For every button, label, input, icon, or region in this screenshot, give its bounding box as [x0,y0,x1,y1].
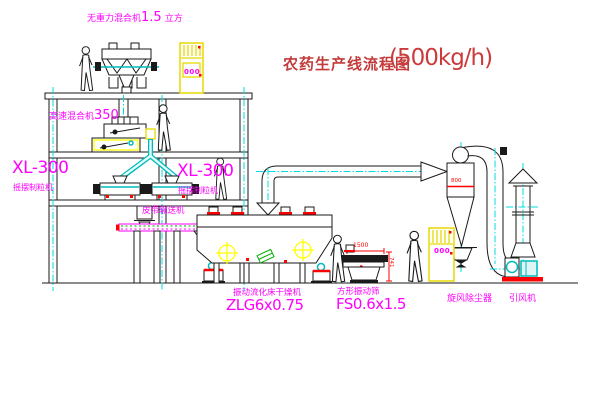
label-granulator-right-model: XL-300 [177,163,233,180]
dimension-screen-length: 1500 [353,243,368,249]
cabinet-upper-display: 000 [184,69,200,76]
label-cyclone: 旋风除尘器 [447,295,492,304]
label-granulator-right-name: 摇摆制粒机 [178,187,218,195]
label-high-speed-mixer: 高速混合机 350 [49,109,119,122]
cad-flowsheet-canvas: 农药生产线流程图 (500kg/h) 无重力混合机 1.5 立方 高速混合机 3… [0,0,600,403]
granulator-left-machine [93,176,147,200]
dimension-screen-height: 741 [388,257,394,268]
label-screen-model: FS0.6x1.5 [336,297,406,312]
drawing-title-capacity: (500kg/h) [389,45,492,71]
person-near-cabinet [407,231,422,281]
person-roof [80,47,93,91]
label-fan: 引风机 [509,295,536,304]
label-granulator-left-name: 摇摆制粒机 [13,184,53,192]
roof-slab [45,93,252,99]
vibrating-screen [339,245,393,283]
dimension-cyclone-body: 800 [451,179,462,185]
label-dryer-model: ZLG6x0.75 [226,298,304,313]
label-granulator-left-model: XL-300 [12,160,68,177]
cabinet-lower-display: 000 [434,248,450,255]
induced-draft-fan [502,258,543,282]
gravity-mixer [93,43,159,93]
fluid-bed-dryer [197,207,332,284]
belt-conveyor [116,224,202,283]
fan-base [502,277,543,282]
label-gravity-mixer: 无重力混合机 1.5 立方 [87,11,183,24]
label-belt-conveyor: 皮带输送机 [142,207,185,216]
